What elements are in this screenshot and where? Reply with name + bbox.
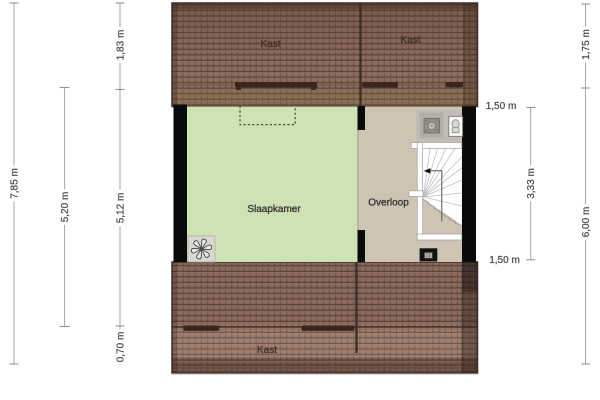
svg-text:6,00 m: 6,00 m	[581, 207, 592, 238]
svg-text:Kast: Kast	[260, 39, 280, 50]
svg-text:3,33 m: 3,33 m	[526, 168, 537, 199]
svg-text:5,12 m: 5,12 m	[116, 193, 127, 224]
svg-text:5,20 m: 5,20 m	[60, 192, 71, 223]
svg-text:1,75 m: 1,75 m	[581, 29, 592, 60]
svg-text:1,83 m: 1,83 m	[116, 30, 127, 61]
svg-text:Kast: Kast	[400, 35, 420, 46]
svg-text:Kast: Kast	[257, 345, 277, 356]
svg-text:1,50 m: 1,50 m	[489, 255, 520, 266]
svg-text:Overloop: Overloop	[368, 198, 409, 209]
svg-text:Slaapkamer: Slaapkamer	[247, 204, 301, 215]
svg-text:1,50 m: 1,50 m	[486, 101, 517, 112]
svg-text:0,70 m: 0,70 m	[116, 332, 127, 363]
svg-text:7,85 m: 7,85 m	[10, 168, 21, 199]
